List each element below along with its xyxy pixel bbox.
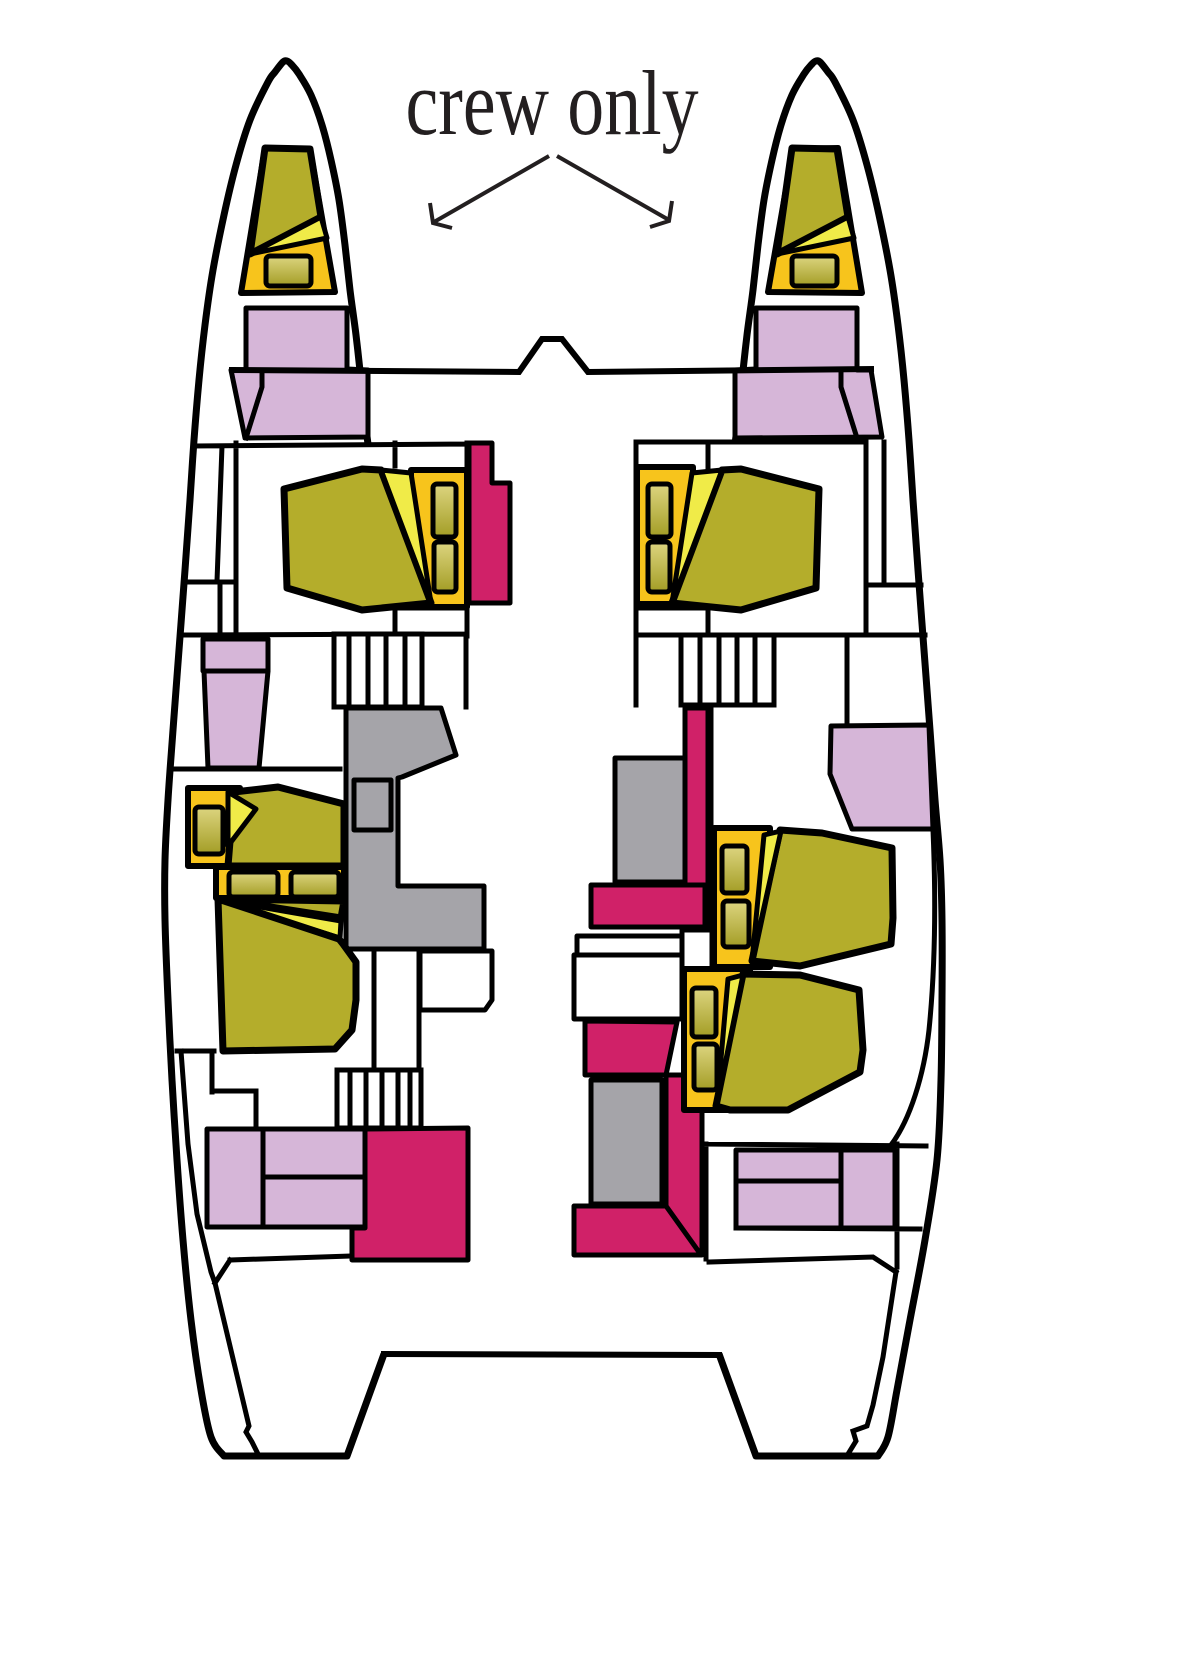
svg-text:crew only: crew only <box>406 52 699 154</box>
